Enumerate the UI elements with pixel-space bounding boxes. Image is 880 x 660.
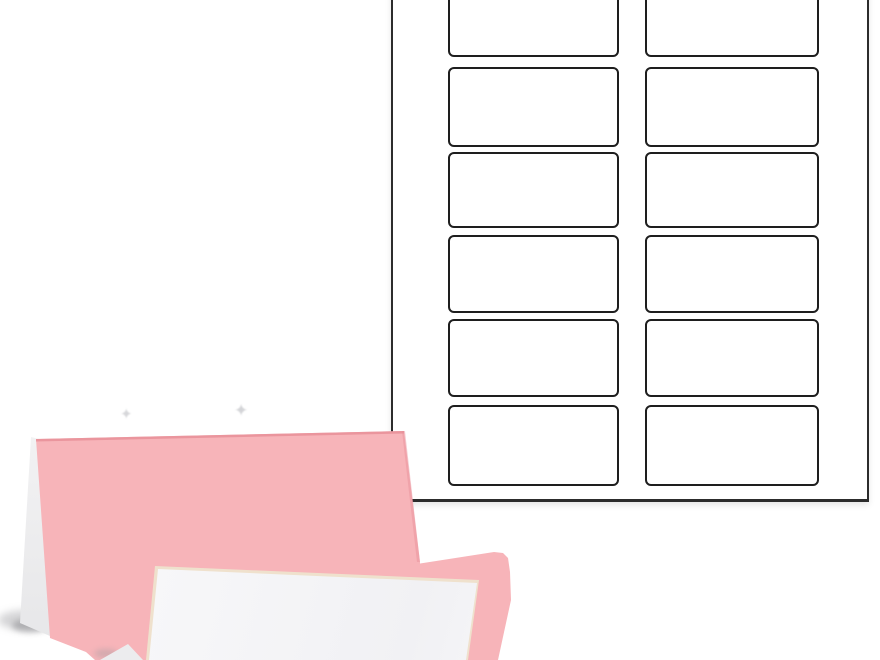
template-cell [448, 0, 619, 57]
template-cell [645, 152, 819, 228]
template-cell [645, 235, 819, 313]
template-cell [645, 67, 819, 147]
template-cell [448, 152, 619, 228]
template-cell [448, 405, 619, 486]
template-sheet [391, 0, 869, 502]
sparkle-icon: ✦ [234, 401, 248, 421]
template-cell [448, 319, 619, 397]
sparkle-icon: ✦ [120, 405, 133, 423]
template-cell [645, 0, 819, 57]
product-photo: ✦ ✦ [0, 0, 880, 660]
template-cell [645, 405, 819, 486]
card-shadow [12, 619, 48, 632]
template-cell [448, 67, 619, 147]
template-cell [645, 319, 819, 397]
template-cell [448, 235, 619, 313]
card-shadow [94, 649, 118, 658]
